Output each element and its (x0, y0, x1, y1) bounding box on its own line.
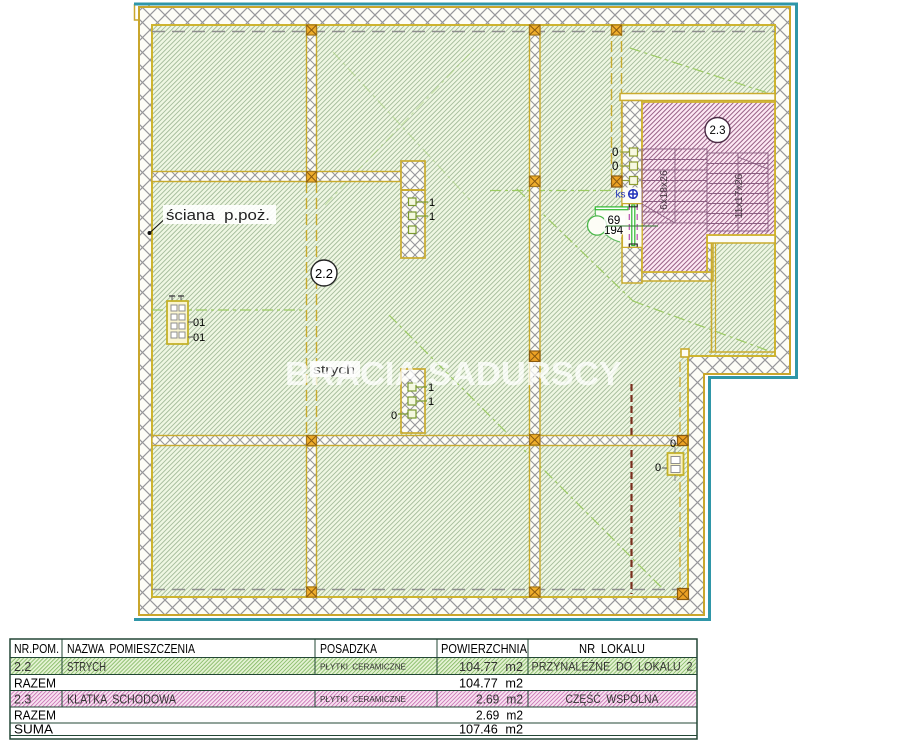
svg-text:PRZYNALEŻNE DO LOKALU 2: PRZYNALEŻNE DO LOKALU 2 (532, 660, 693, 674)
svg-text:2.3: 2.3 (14, 693, 31, 707)
svg-text:RAZEM: RAZEM (14, 709, 56, 723)
svg-text:0: 0 (670, 438, 676, 450)
svg-text:NAZWA POMIESZCZENIA: NAZWA POMIESZCZENIA (67, 642, 196, 656)
svg-text:PŁYTKI CERAMICZNE: PŁYTKI CERAMICZNE (320, 694, 406, 704)
svg-text:0: 0 (612, 161, 618, 173)
svg-text:PŁYTKI CERAMICZNE: PŁYTKI CERAMICZNE (320, 662, 406, 672)
svg-text:BRACIA SADURSCY: BRACIA SADURSCY (285, 355, 622, 392)
svg-text:01: 01 (193, 317, 205, 329)
svg-text:2.3: 2.3 (710, 125, 726, 137)
svg-text:2.69 m2: 2.69 m2 (476, 693, 523, 707)
svg-text:0: 0 (612, 147, 618, 159)
svg-text:6x18x26: 6x18x26 (658, 170, 670, 210)
svg-text:2.2: 2.2 (315, 266, 333, 281)
svg-text:POSADZKA: POSADZKA (320, 642, 378, 656)
svg-text:NR LOKALU: NR LOKALU (579, 642, 645, 656)
svg-text:SUMA: SUMA (14, 723, 54, 737)
svg-text:2.69 m2: 2.69 m2 (476, 709, 523, 723)
svg-text:2.2: 2.2 (14, 660, 31, 674)
svg-text:107.46 m2: 107.46 m2 (459, 723, 523, 737)
svg-text:CZĘŚĆ WSPÓLNA: CZĘŚĆ WSPÓLNA (566, 691, 659, 706)
svg-text:0: 0 (391, 410, 397, 422)
svg-text:STRYCH: STRYCH (67, 660, 106, 674)
svg-text:194: 194 (604, 225, 624, 237)
svg-text:RAZEM: RAZEM (14, 677, 56, 691)
svg-text:104.77 m2: 104.77 m2 (459, 677, 523, 691)
svg-text:ściana p.poż.: ściana p.poż. (166, 208, 270, 224)
svg-text:11x17x26: 11x17x26 (733, 173, 745, 218)
svg-text:104.77 m2: 104.77 m2 (459, 660, 523, 674)
svg-text:KLATKA SCHODOWA: KLATKA SCHODOWA (67, 693, 177, 707)
svg-text:1: 1 (429, 211, 435, 223)
svg-text:1: 1 (429, 197, 435, 209)
svg-text:0: 0 (655, 462, 661, 474)
svg-text:NR.POM.: NR.POM. (14, 642, 59, 656)
svg-text:POWIERZCHNIA: POWIERZCHNIA (441, 642, 528, 656)
svg-text:01: 01 (193, 332, 205, 344)
svg-text:1: 1 (428, 396, 434, 408)
svg-text:ks: ks (616, 190, 626, 201)
